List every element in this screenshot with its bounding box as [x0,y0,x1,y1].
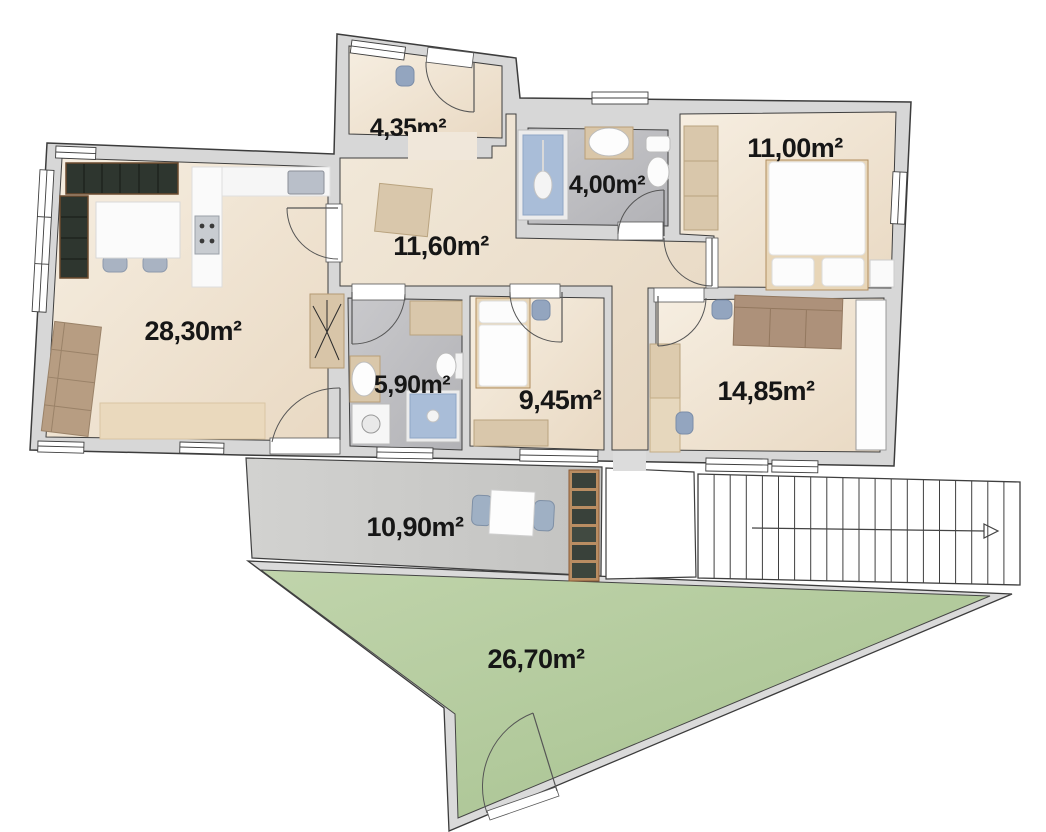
burner [210,224,215,229]
dining-table [96,202,180,258]
kitchen-sink [288,171,324,194]
terrace-table [489,490,535,536]
bed-pillow [772,258,814,286]
toilet-bowl [647,157,669,187]
shower-head-icon [534,171,552,199]
passage-opening [408,132,477,160]
window-bathroom-small-bottom [377,447,433,459]
lowboard [100,403,265,439]
storage-room-floor [606,468,696,579]
planter-box [572,563,596,578]
terrace-chair-right [533,500,555,531]
stool [712,300,732,319]
corridor-opening [613,451,646,471]
shower [518,130,568,220]
window-bedroom-middle-bottom [520,449,598,462]
room-living-kitchen: 28,30m² [41,158,344,441]
sink-basin [352,362,376,396]
stool [396,66,414,86]
burner [210,239,215,244]
room-bathroom-small: 5,90m² [348,298,463,450]
room-bathroom-top: 4,00m² [518,127,670,226]
terrace-label: 10,90m² [366,512,464,542]
washer-drum-icon [362,415,380,433]
room-bedroom-right: 14,85m² [650,295,886,452]
desk-chair [676,412,693,434]
hallway-label: 11,60m² [393,231,489,261]
bathroom-top-label: 4,00m² [569,171,645,199]
fan-cabinet [310,294,344,368]
terrace-planters [569,470,599,581]
nightstand [870,260,894,287]
desk-upper [650,344,680,398]
bedroom-top-right-label: 11,00m² [747,133,843,163]
door-threshold [326,204,342,262]
door-threshold [654,288,704,302]
kitchen-cabinets-top [66,163,178,194]
burner [200,224,205,229]
bath-cabinet [410,301,462,335]
garden-area: 26,70m² [248,561,1012,831]
stool [532,300,550,320]
floor-plan-drawing: 26,70m² 10,90m² [0,0,1046,832]
window-bedroom-right-bottom [706,458,768,472]
shower-drain-icon [427,410,439,422]
burner [200,239,205,244]
window-bedroom-right-bottom-2 [772,460,818,473]
bedroom-middle-label: 9,45m² [519,385,602,415]
kitchen-cabinets-left [60,196,88,278]
terrace-area: 10,90m² [246,458,602,581]
bathroom-small-label: 5,90m² [374,371,450,399]
planter-box [572,491,596,506]
living-kitchen-label: 28,30m² [144,316,242,346]
planter-box [572,545,596,560]
bedroom-right-label: 14,85m² [717,376,815,406]
garden-lawn [261,570,990,818]
bed-pillow [479,301,527,323]
window-top-bath [592,92,648,104]
toilet-cistern [646,136,670,152]
door-threshold [618,222,663,240]
garden-label: 26,70m² [487,644,585,674]
single-bed [476,298,530,388]
door-threshold [352,284,405,300]
sofa-body [733,295,843,349]
double-bed [766,160,868,290]
bed-duvet [769,162,865,255]
room-bedroom-middle: 9,45m² [470,296,604,450]
sofa-bedroom [733,295,843,349]
door-threshold [510,284,560,298]
bed-duvet [479,325,527,386]
hallway-sideboard [375,183,433,236]
washing-machine [352,404,390,444]
bathroom-sink [585,127,633,159]
floor-plan-page: 26,70m² 10,90m² [0,0,1046,832]
door-threshold [270,438,340,454]
toilet [646,136,670,187]
window-living-bottom [38,441,84,453]
planter-box [572,527,596,542]
bed-pillow [822,258,864,286]
wardrobe [684,126,718,230]
wardrobe-white [856,300,886,450]
window-living-top [56,146,96,160]
window-living-bottom-2 [180,442,224,454]
planter-box [572,509,596,524]
sink-basin [589,128,629,156]
planter-box [572,473,596,488]
stove [195,216,219,254]
desk [474,420,548,446]
staircase [698,474,1020,585]
window-bedroom-top-right [891,172,907,225]
